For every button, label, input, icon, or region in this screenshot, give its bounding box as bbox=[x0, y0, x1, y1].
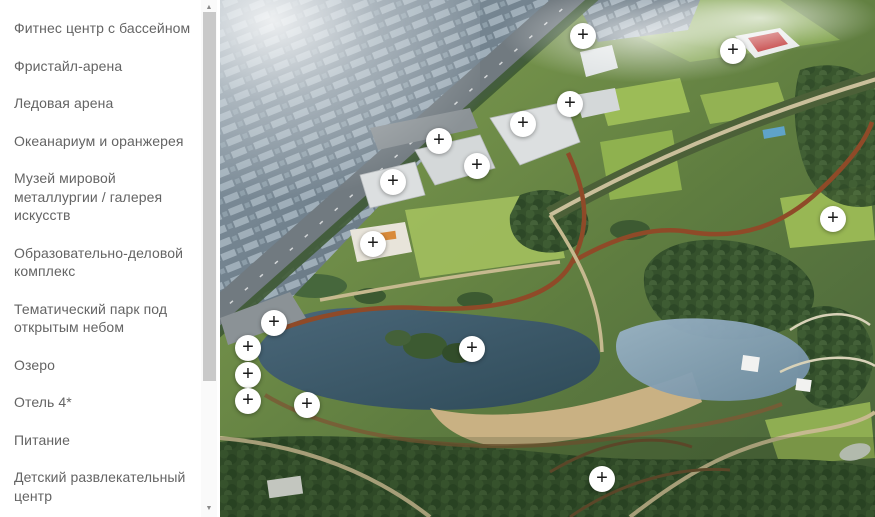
map-marker[interactable]: + bbox=[510, 111, 536, 137]
map-marker[interactable]: + bbox=[380, 169, 406, 195]
sidebar-scrollbar[interactable]: ▲ ▼ bbox=[201, 0, 217, 517]
sidebar-item[interactable]: Детский развлекательный центр bbox=[14, 468, 193, 505]
map-marker[interactable]: + bbox=[570, 23, 596, 49]
plus-icon: + bbox=[387, 171, 399, 191]
plus-icon: + bbox=[242, 337, 254, 357]
map-marker[interactable]: + bbox=[464, 153, 490, 179]
plus-icon: + bbox=[827, 208, 839, 228]
plus-icon: + bbox=[268, 312, 280, 332]
plus-icon: + bbox=[301, 394, 313, 414]
sidebar-item[interactable]: Океанариум и оранжерея bbox=[14, 132, 193, 151]
sidebar-item[interactable]: Ледовая арена bbox=[14, 94, 193, 113]
plus-icon: + bbox=[727, 40, 739, 60]
sidebar-item[interactable]: Тематический парк под открытым небом bbox=[14, 300, 193, 337]
map-marker[interactable]: + bbox=[820, 206, 846, 232]
markers-layer: ++++++++++++++++ bbox=[220, 0, 875, 517]
sidebar-item[interactable]: Образовательно-деловой комплекс bbox=[14, 244, 193, 281]
plus-icon: + bbox=[517, 113, 529, 133]
map-marker[interactable]: + bbox=[459, 336, 485, 362]
map-marker[interactable]: + bbox=[235, 335, 261, 361]
sidebar: Фитнес центр с бассейномФристайл-аренаЛе… bbox=[0, 0, 201, 517]
sidebar-item[interactable]: Музей мировой металлургии / галерея иску… bbox=[14, 169, 193, 225]
map-marker[interactable]: + bbox=[720, 38, 746, 64]
sidebar-item[interactable]: Фристайл-арена bbox=[14, 57, 193, 76]
park-map-panel: ++++++++++++++++ bbox=[220, 0, 875, 517]
sidebar-item[interactable]: Отель 4* bbox=[14, 393, 193, 412]
map-marker[interactable]: + bbox=[235, 388, 261, 414]
sidebar-item[interactable]: Озеро bbox=[14, 356, 193, 375]
scrollbar-thumb[interactable] bbox=[203, 12, 216, 381]
plus-icon: + bbox=[367, 233, 379, 253]
plus-icon: + bbox=[242, 390, 254, 410]
app-window: Фитнес центр с бассейномФристайл-аренаЛе… bbox=[0, 0, 875, 517]
map-marker[interactable]: + bbox=[557, 91, 583, 117]
plus-icon: + bbox=[577, 25, 589, 45]
map-marker[interactable]: + bbox=[360, 231, 386, 257]
plus-icon: + bbox=[466, 338, 478, 358]
plus-icon: + bbox=[242, 364, 254, 384]
sidebar-list: Фитнес центр с бассейномФристайл-аренаЛе… bbox=[14, 19, 193, 517]
plus-icon: + bbox=[433, 130, 445, 150]
plus-icon: + bbox=[471, 155, 483, 175]
sidebar-item[interactable]: Питание bbox=[14, 431, 193, 450]
plus-icon: + bbox=[564, 93, 576, 113]
plus-icon: + bbox=[596, 468, 608, 488]
map-marker[interactable]: + bbox=[589, 466, 615, 492]
map-marker[interactable]: + bbox=[294, 392, 320, 418]
scroll-down-icon[interactable]: ▼ bbox=[201, 502, 217, 515]
sidebar-item[interactable]: Фитнес центр с бассейном bbox=[14, 19, 193, 38]
map-marker[interactable]: + bbox=[261, 310, 287, 336]
map-marker[interactable]: + bbox=[235, 362, 261, 388]
map-marker[interactable]: + bbox=[426, 128, 452, 154]
